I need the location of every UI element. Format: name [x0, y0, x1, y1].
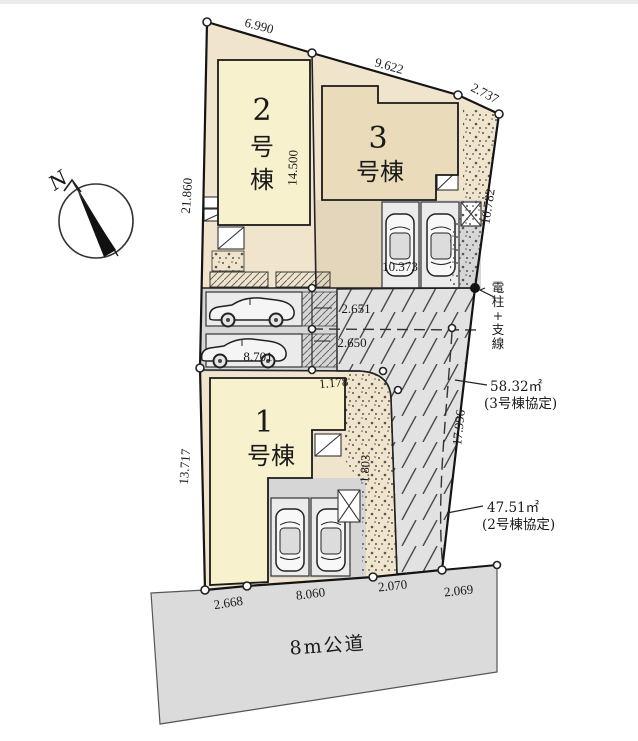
building-3-number: 3 [368, 121, 387, 156]
area-annotation-building2: 47.51㎡ (2号棟協定) [447, 500, 555, 533]
utility-char-4: 支 [492, 322, 505, 337]
dim-bottom-3: 2.070 [377, 577, 408, 595]
dim-left-upper: 21.860 [178, 177, 195, 214]
dim-building2-depth: 14.500 [284, 150, 300, 186]
dim-mid-width: 8.701 [243, 349, 272, 364]
hatch-wedge [302, 334, 337, 367]
north-label: N [43, 165, 73, 196]
dim-plot1-side: 1.803 [357, 454, 372, 483]
area-annotation-building3: 58.32㎡ (3号棟協定) [455, 379, 557, 412]
dim-bottom-4: 2.069 [443, 582, 474, 600]
area2-leader-line [447, 506, 483, 513]
building-2-suffix-2: 棟 [250, 166, 274, 194]
area3-value: 58.32㎡ [490, 379, 543, 395]
building-3-suffix: 号棟 [356, 158, 404, 186]
dim-plot1-corner: 1.178 [318, 374, 348, 391]
site-plan-page: 8m公道 [0, 0, 638, 741]
dim-left-lower: 13.717 [176, 448, 193, 485]
utility-char-3: + [493, 308, 503, 323]
dim-mid-upper: 2.651 [341, 301, 370, 316]
site-plan-drawing: 8m公道 [0, 0, 638, 741]
utility-pole-marker [470, 283, 480, 293]
hatch-wedge [302, 292, 337, 326]
area2-note: (2号棟協定) [482, 517, 555, 533]
entrance-stipple [212, 251, 244, 271]
building-2-label: 2 号 棟 [250, 93, 274, 194]
car-icon [276, 509, 304, 571]
building-1-number: 1 [254, 405, 273, 440]
utility-char-5: 線 [492, 336, 505, 351]
dim-right-lower: 17.996 [449, 408, 468, 446]
utility-char-1: 電 [492, 280, 505, 295]
dim-parking3-width: 10.373 [382, 259, 418, 274]
building-2-number: 2 [252, 93, 271, 128]
area2-value: 47.51㎡ [487, 500, 540, 516]
building-1-suffix: 号棟 [247, 442, 295, 470]
scan-edge-band [0, 0, 638, 4]
dim-mid-lower: 2.650 [337, 335, 366, 350]
building-2-suffix-1: 号 [250, 133, 274, 161]
area3-note: (3号棟協定) [484, 396, 557, 412]
kerb-hatch [210, 272, 268, 287]
kerb-hatch [276, 272, 330, 287]
utility-pole-label: 電 柱 + 支 線 [480, 280, 505, 351]
north-compass-icon: N [43, 165, 133, 258]
